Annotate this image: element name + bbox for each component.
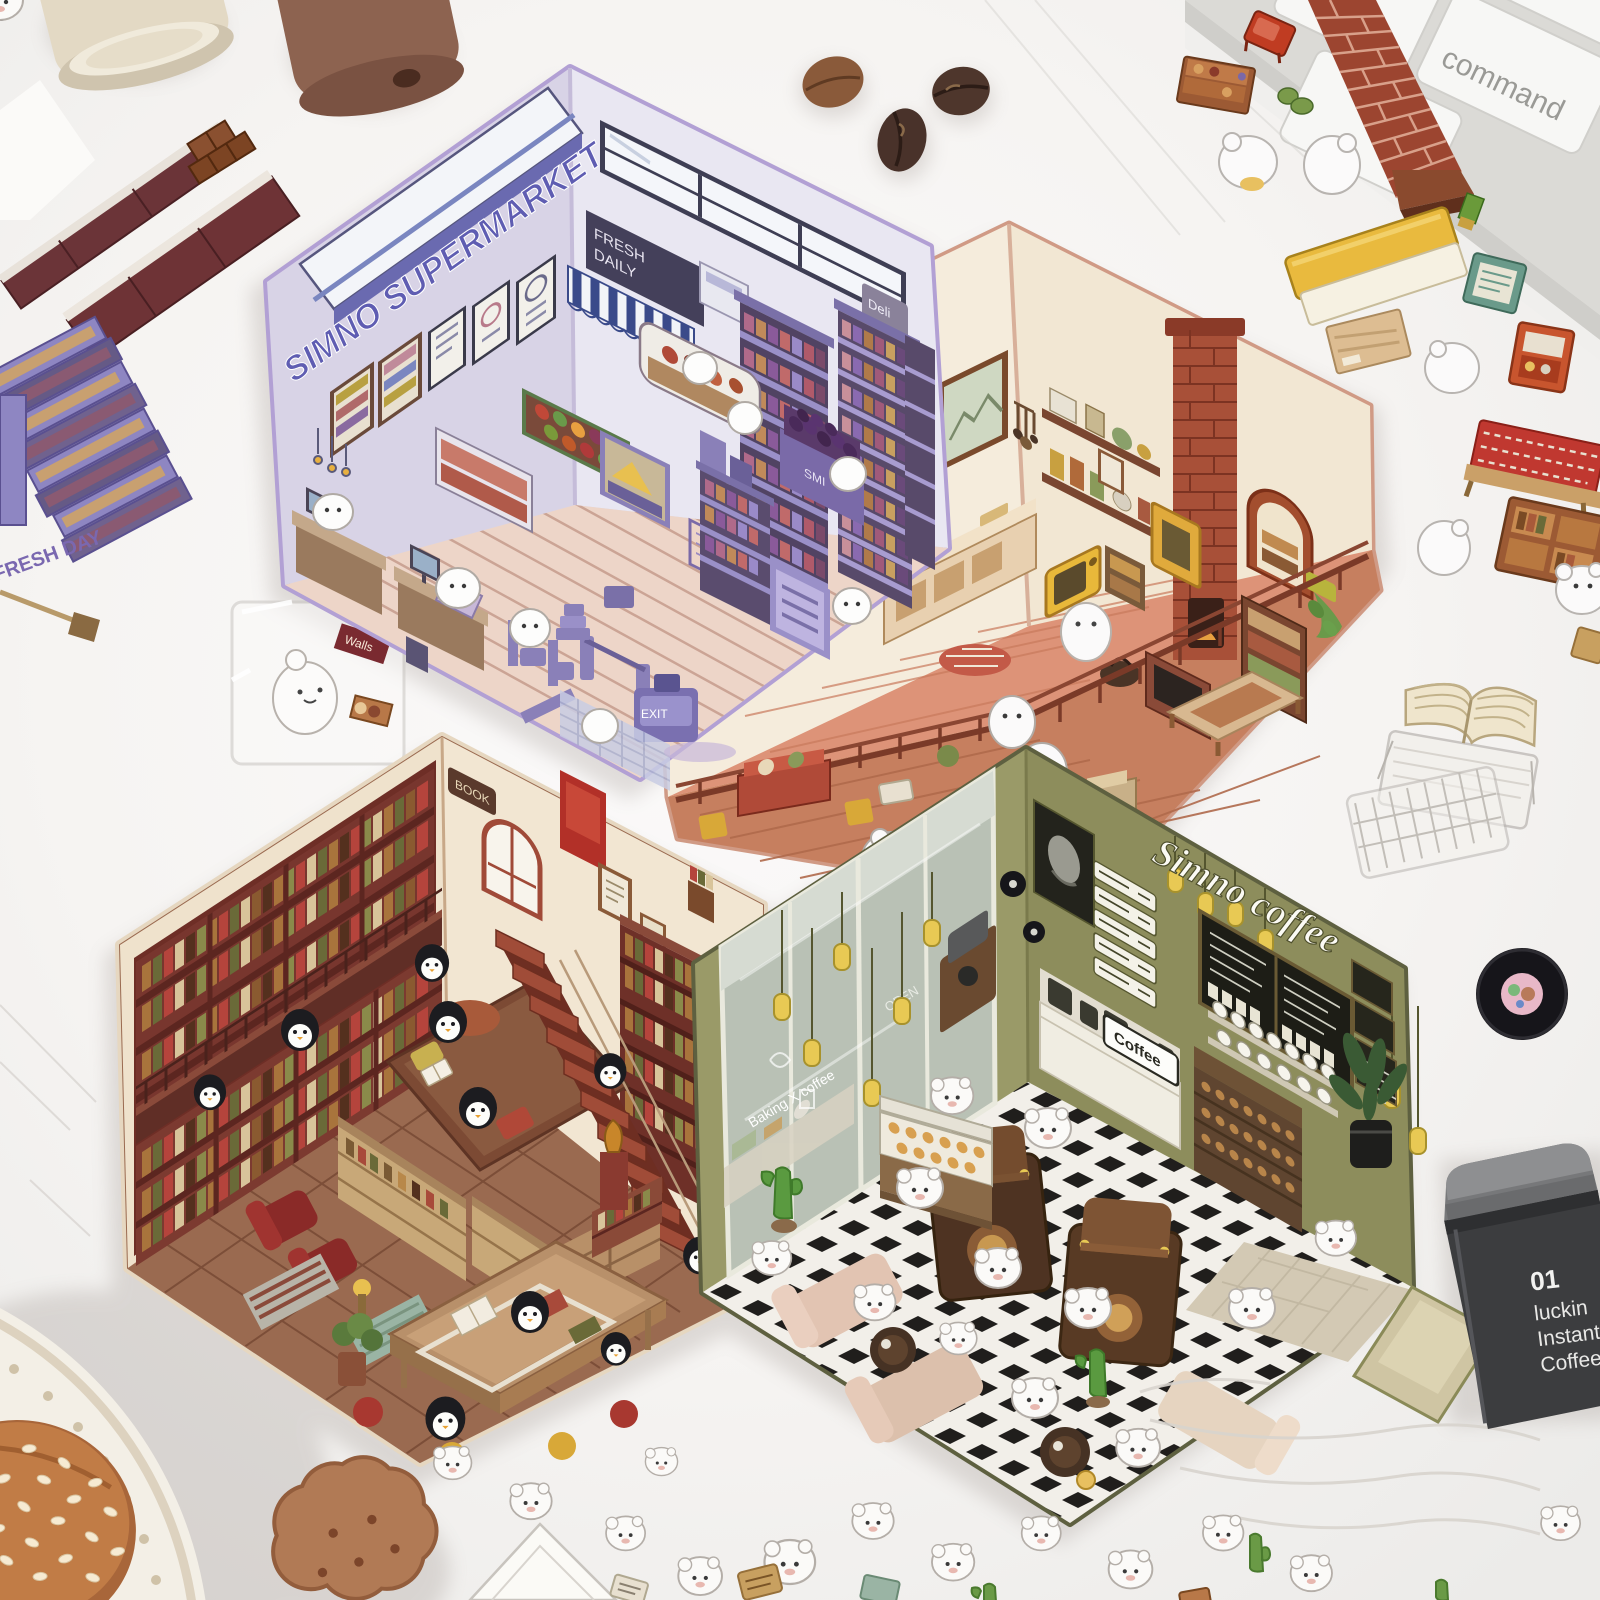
svg-text:EXIT: EXIT <box>641 707 668 721</box>
svg-text:01: 01 <box>1528 1263 1560 1296</box>
